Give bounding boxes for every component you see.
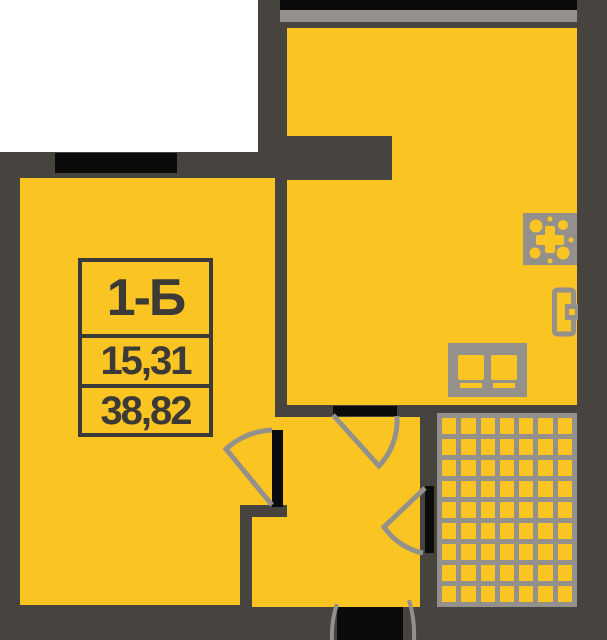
bathroom-tile	[538, 418, 552, 434]
bathroom-tile	[481, 460, 495, 476]
bathroom-tile	[461, 544, 475, 560]
bathroom-tile	[500, 460, 514, 476]
kitchen-counter-icon	[448, 343, 527, 397]
entrance-door-opening	[337, 607, 403, 640]
bathroom-tile	[538, 586, 552, 602]
bathroom-tile	[442, 502, 456, 518]
bathroom-tile	[558, 544, 572, 560]
bathroom-tile	[500, 523, 514, 539]
bathroom-tile	[461, 481, 475, 497]
window-sill-top	[280, 10, 577, 22]
bathroom-tile	[500, 418, 514, 434]
bathroom-tile	[461, 586, 475, 602]
door-opening-bathroom	[425, 486, 434, 553]
door-opening-kitchen	[333, 406, 397, 416]
bathroom-tile	[519, 523, 533, 539]
bathroom-tile	[519, 544, 533, 560]
bathroom-tile	[461, 565, 475, 581]
bathroom-tile	[538, 439, 552, 455]
bathroom-tile	[481, 439, 495, 455]
bathroom-tile	[442, 481, 456, 497]
bathroom-tile	[481, 586, 495, 602]
bathroom-tile	[481, 418, 495, 434]
outside-area	[0, 0, 258, 152]
fridge-icon	[551, 287, 578, 337]
bathroom-tile	[519, 460, 533, 476]
bathroom-tile	[500, 544, 514, 560]
bathroom-tile	[500, 565, 514, 581]
bathroom-tile	[558, 565, 572, 581]
bathroom-tile	[558, 523, 572, 539]
bathroom-tile	[442, 418, 456, 434]
bathroom-tile	[558, 460, 572, 476]
bathroom-tile	[481, 523, 495, 539]
bathroom-tile	[558, 418, 572, 434]
bathroom-tile	[442, 565, 456, 581]
bathroom-tile	[500, 502, 514, 518]
bathroom-tile	[538, 544, 552, 560]
unit-code: 1-Б	[82, 262, 209, 338]
bathroom-tile	[519, 481, 533, 497]
bathroom-tile	[558, 439, 572, 455]
wall-stub-top	[287, 136, 392, 180]
hallway-extension	[252, 517, 287, 607]
bathroom-tile	[519, 502, 533, 518]
bathroom-tile	[558, 586, 572, 602]
bathroom-tile	[461, 439, 475, 455]
bathroom-tile	[461, 523, 475, 539]
bathroom-tile	[519, 565, 533, 581]
hallway	[287, 417, 420, 607]
bathroom-tiles	[437, 413, 577, 607]
bathroom-tile	[538, 502, 552, 518]
bathroom-tile	[481, 544, 495, 560]
bathroom-tile	[461, 502, 475, 518]
unit-info-box: 1-Б 15,31 38,82	[78, 258, 213, 437]
bathroom-tile	[481, 565, 495, 581]
bathroom-tile	[500, 481, 514, 497]
bathroom-tile	[481, 502, 495, 518]
bathroom-tile	[519, 418, 533, 434]
bathroom-tile	[538, 460, 552, 476]
unit-total-area: 38,82	[82, 388, 209, 433]
wall-step-vertical	[240, 505, 252, 607]
bathroom-tile	[538, 523, 552, 539]
bathroom-tile	[442, 460, 456, 476]
bathroom-tile	[538, 565, 552, 581]
door-leaf-living	[272, 430, 283, 507]
window-left-room	[55, 153, 177, 173]
bathroom-tile	[500, 586, 514, 602]
stove-icon	[523, 213, 577, 265]
bathroom-tile	[519, 439, 533, 455]
bathroom-tile	[558, 481, 572, 497]
unit-living-area: 15,31	[82, 338, 209, 388]
bathroom-tile	[461, 418, 475, 434]
bathroom-tile	[461, 460, 475, 476]
bathroom-tile	[538, 481, 552, 497]
bathroom-tile	[442, 523, 456, 539]
bathroom-tile	[442, 439, 456, 455]
window-glass-top	[280, 0, 577, 10]
floor-plan: 1-Б 15,31 38,82	[0, 0, 607, 640]
bathroom-tile	[500, 439, 514, 455]
bathroom-tile	[558, 502, 572, 518]
bathroom-tile	[481, 481, 495, 497]
bathroom-tile	[442, 586, 456, 602]
bathroom-tile	[519, 586, 533, 602]
bathroom-tile	[442, 544, 456, 560]
